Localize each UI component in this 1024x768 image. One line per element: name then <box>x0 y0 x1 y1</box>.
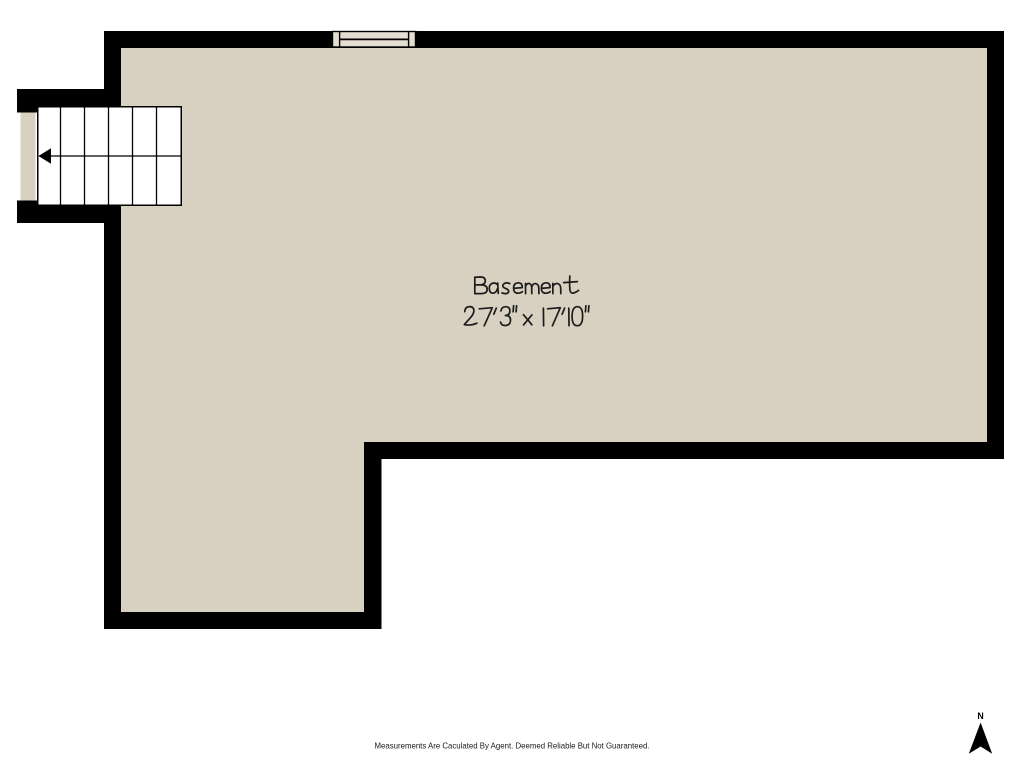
svg-text:Measurements Are Caculated By: Measurements Are Caculated By Agent. Dee… <box>375 741 650 751</box>
svg-text:N: N <box>977 711 983 721</box>
